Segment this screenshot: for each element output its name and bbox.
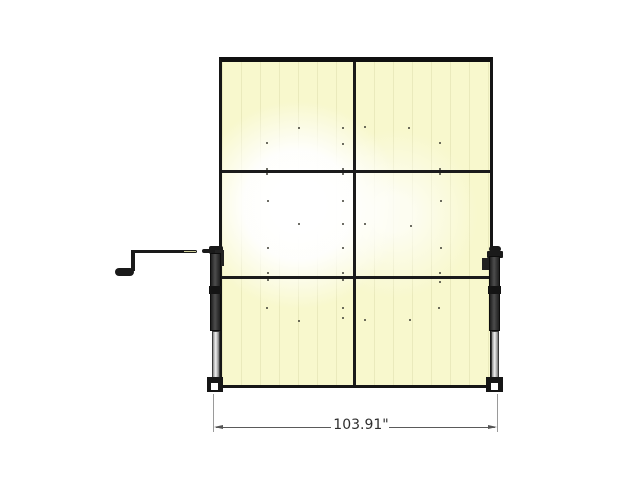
fastener-dot (364, 223, 366, 225)
fastener-dot (439, 281, 441, 283)
dimension-arrow-left (214, 425, 223, 429)
fastener-dot (439, 272, 441, 274)
right-jack-foot (486, 377, 503, 392)
fastener-dot (266, 173, 268, 175)
right-jack-foot-hole (491, 383, 498, 390)
fastener-dot (440, 247, 442, 249)
technical-drawing-canvas: 103.91" (0, 0, 630, 491)
right-jack-collar (488, 286, 501, 294)
left-jack-inner-tube (212, 331, 220, 381)
fastener-dot (342, 200, 344, 202)
fastener-dot (439, 142, 441, 144)
fastener-dot (438, 307, 440, 309)
fastener-dot (342, 127, 344, 129)
fastener-dot (266, 307, 268, 309)
fastener-dot (342, 307, 344, 309)
fastener-dot (364, 126, 366, 128)
left-jack-foot-hole (211, 383, 218, 390)
fastener-dot (409, 319, 411, 321)
fastener-dot (364, 319, 366, 321)
fastener-dot (408, 127, 410, 129)
fastener-dot (266, 168, 268, 170)
fastener-dot (342, 272, 344, 274)
left-jack-collar (209, 286, 222, 294)
dimension-line-right-segment (389, 427, 495, 428)
right-jack-inner-tube (491, 331, 499, 381)
fastener-dot (342, 247, 344, 249)
fastener-dot (342, 168, 344, 170)
dimension-extension-line-right (497, 394, 498, 432)
dimension-line-left-segment (216, 427, 331, 428)
crank-grip (115, 268, 134, 276)
fastener-dot (267, 247, 269, 249)
fastener-dot (266, 142, 268, 144)
fastener-dot (267, 272, 269, 274)
fastener-dot (342, 223, 344, 225)
fastener-dot (410, 225, 412, 227)
fastener-dot (267, 200, 269, 202)
fastener-dot (439, 173, 441, 175)
fastener-dot (440, 200, 442, 202)
fastener-dot (342, 279, 344, 281)
dimension-arrow-right (488, 425, 497, 429)
left-jack-foot (207, 377, 223, 392)
fastener-dot (298, 223, 300, 225)
fastener-dot (342, 317, 344, 319)
fastener-dot (298, 127, 300, 129)
fastener-dots-layer (0, 0, 630, 491)
fastener-dot (298, 320, 300, 322)
fastener-dot (439, 168, 441, 170)
fastener-dot (342, 143, 344, 145)
crank-shaft-highlight (184, 251, 196, 252)
fastener-dot (267, 279, 269, 281)
fastener-dot (342, 173, 344, 175)
dimension-label: 103.91" (326, 417, 396, 433)
